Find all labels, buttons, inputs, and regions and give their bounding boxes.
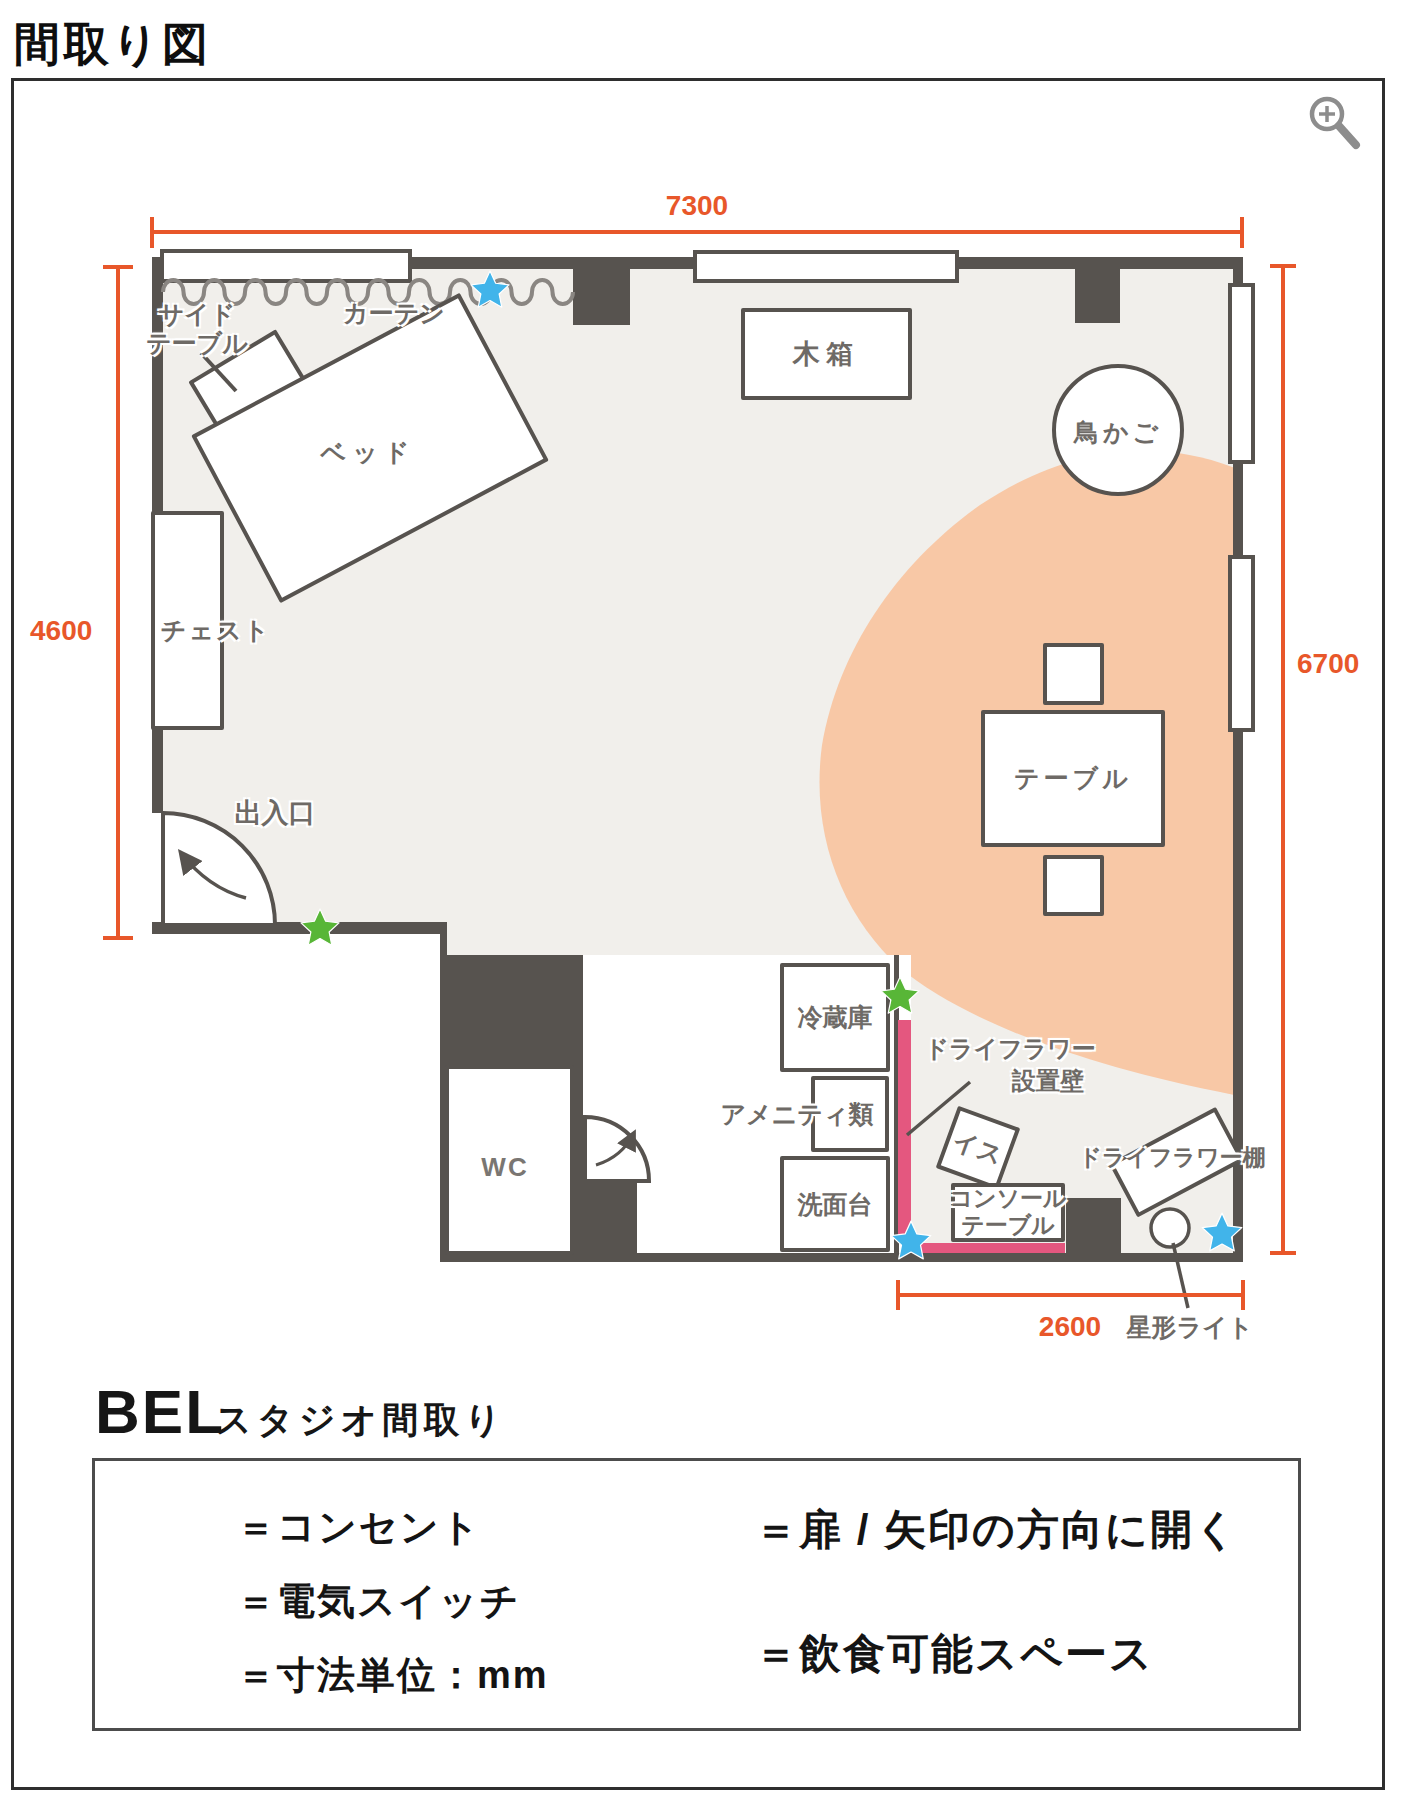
curtain-label: カーテン [343,299,445,328]
legend-door-label: ＝扉 / 矢印の方向に開く [755,1502,1239,1558]
window-top-middle [695,252,957,281]
table-chair-bottom [1045,857,1102,914]
legend-switch-label: ＝電気スイッチ [237,1576,521,1627]
table-label: テーブル [1014,764,1132,793]
studio-logo-subtitle: スタジオ間取り [215,1396,506,1445]
pillar-top-2 [1075,269,1120,323]
pillar-top-1 [573,269,630,325]
dried-flower-wall-horizontal [911,1243,1065,1253]
dim-bottom-value: 2600 [1039,1311,1101,1343]
table-chair-top [1045,645,1102,703]
chest-label: チェスト [161,616,271,645]
washbasin-label: 洗面台 [798,1190,873,1219]
wooden-box-label: 木箱 [793,340,859,369]
star-light-label: 星形ライト [1127,1313,1254,1342]
flower-shelf-label: ドライフラワー棚 [1078,1143,1265,1172]
flower-wall-label-line2: 設置壁 [1012,1066,1084,1095]
bed-label: ベッド [321,438,416,467]
window-right-upper [1230,285,1253,462]
dim-right-value: 6700 [1297,648,1359,680]
dim-top-value: 7300 [666,190,728,222]
wc-door-swing [585,1117,649,1181]
legend-dining-label: ＝飲食可能スペース [755,1626,1154,1682]
studio-logo: BEL [95,1376,225,1447]
star-light [1151,1209,1189,1247]
refrigerator-label: 冷蔵庫 [798,1003,873,1032]
magnifier-icon[interactable] [1312,99,1356,145]
wall-block-closet [447,955,583,1067]
flower-wall-label-line1: ドライフラワー [924,1034,1095,1063]
legend-dimension-label: ＝寸法単位：mm [237,1650,549,1701]
legend-outlet-label: ＝コンセント [237,1502,481,1553]
pillar-bottom-right [1066,1198,1121,1253]
birdcage-label: 鳥かご [1074,418,1162,447]
wc-label: WC [481,1153,528,1182]
side-table-label: サイド テーブル [146,300,248,358]
dim-left-value: 4600 [30,615,92,647]
floorplan-page: 間取り図 [0,0,1402,1799]
amenities-label: アメニティ類 [721,1100,874,1129]
console-table-label: コンソール テーブル [949,1185,1066,1239]
entrance-label: 出入口 [235,799,316,828]
window-right-lower [1230,557,1253,730]
wall-block-wc-door [572,1180,637,1253]
window-top-left [162,251,410,281]
